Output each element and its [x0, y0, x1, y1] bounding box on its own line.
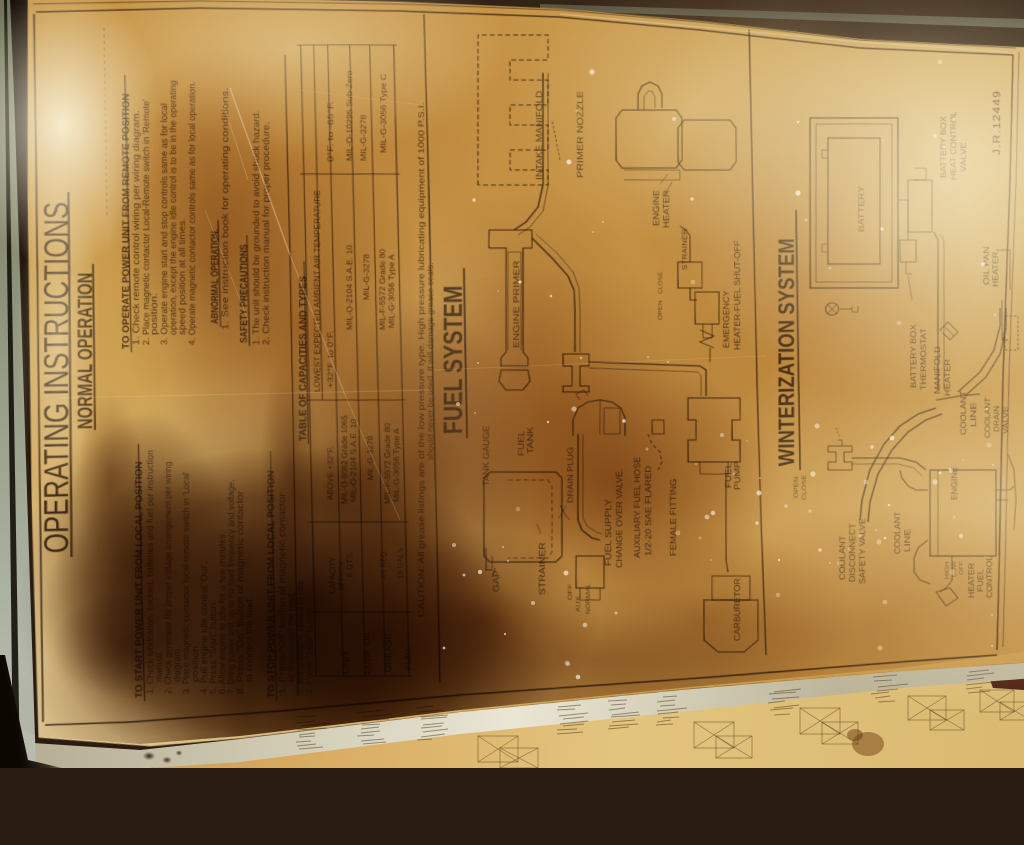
svg-text:LOWEST EXPECTED AMBIENT AIR TE: LOWEST EXPECTED AMBIENT AIR TEMPERATURE	[312, 190, 322, 392]
svg-text:AUXILIARY FUEL HOSE: AUXILIARY FUEL HOSE	[632, 457, 642, 559]
svg-text:HEATER: HEATER	[661, 190, 671, 228]
svg-text:3. Press "Stop" button.: 3. Press "Stop" button.	[304, 605, 314, 694]
svg-text:2. Check instruction manual fo: 2. Check instruction manual for proper p…	[261, 122, 271, 345]
svg-text:ENGINE PRIMER: ENGINE PRIMER	[511, 260, 521, 348]
svg-text:HIGH: HIGH	[944, 561, 950, 579]
svg-text:BATTERY BOX: BATTERY BOX	[909, 324, 918, 388]
svg-text:MIL-G-3056 Type A: MIL-G-3056 Type A	[392, 428, 401, 503]
svg-text:1. Check remote control wiring: 1. Check remote control wiring per wirin…	[131, 110, 141, 345]
svg-text:MIL-O-2104 S.A.E. 10: MIL-O-2104 S.A.E. 10	[345, 244, 354, 330]
svg-text:THERMOSTAT: THERMOSTAT	[919, 328, 928, 391]
svg-text:GREASE: GREASE	[383, 633, 393, 672]
svg-text:STRAINER: STRAINER	[537, 542, 547, 596]
svg-text:EMERGENCY: EMERGENCY	[721, 291, 730, 349]
svg-text:1. The unit should be grounded: 1. The unit should be grounded to avoid …	[251, 111, 261, 346]
svg-text:COOLANT: COOLANT	[838, 535, 847, 580]
svg-text:VALVE: VALVE	[1001, 406, 1010, 435]
svg-text:MANIFOLD: MANIFOLD	[933, 346, 942, 394]
svg-text:18 GALS.: 18 GALS.	[396, 546, 405, 579]
svg-text:DRAIN: DRAIN	[992, 406, 1001, 433]
svg-text:J.R.12449: J.R.12449	[992, 90, 1003, 155]
svg-text:MIL-G-3278: MIL-G-3278	[366, 435, 375, 480]
svg-text:OPEN: OPEN	[793, 476, 800, 498]
svg-text:TANK GAUGE: TANK GAUGE	[481, 426, 491, 487]
svg-text:CONTROL: CONTROL	[985, 556, 994, 599]
svg-text:MIL-G-3278: MIL-G-3278	[362, 253, 371, 300]
svg-text:BATTERY: BATTERY	[857, 186, 866, 232]
svg-text:PRIMER NOZZLE: PRIMER NOZZLE	[575, 91, 585, 178]
svg-text:OFF: OFF	[567, 584, 574, 601]
svg-text:UNIT: UNIT	[341, 650, 351, 674]
svg-text:1/2-20 SAE FLARED: 1/2-20 SAE FLARED	[643, 465, 653, 556]
svg-text:CARBURETOR: CARBURETOR	[732, 578, 741, 642]
svg-text:FUEL: FUEL	[403, 646, 413, 671]
svg-text:COOLANT: COOLANT	[893, 511, 902, 554]
svg-text:NORMAL: NORMAL	[585, 583, 592, 615]
svg-text:FUEL SUPPLY: FUEL SUPPLY	[603, 499, 613, 566]
svg-text:AUX.: AUX.	[575, 594, 582, 613]
svg-text:6 QTS.: 6 QTS.	[345, 551, 354, 577]
svg-text:HEATER: HEATER	[991, 251, 1000, 287]
svg-text:CAPACITY: CAPACITY	[328, 556, 337, 594]
svg-text:DISCONNECT: DISCONNECT	[848, 523, 857, 582]
svg-text:ENGINE: ENGINE	[950, 466, 959, 500]
svg-text:MIL-F-5572 Grade 80: MIL-F-5572 Grade 80	[383, 422, 392, 504]
svg-text:WINTERIZATION SYSTEM: WINTERIZATION SYSTEM	[774, 238, 799, 466]
svg-text:MIL-F-5572 Grade 80: MIL-F-5572 Grade 80	[378, 248, 387, 330]
svg-text:MIL-O-6082 Grade 1065: MIL-O-6082 Grade 1065	[340, 415, 349, 505]
svg-text:+32°F. to 0°F.: +32°F. to 0°F.	[326, 331, 335, 388]
svg-text:LINE: LINE	[903, 529, 912, 552]
svg-text:FUEL SYSTEM: FUEL SYSTEM	[438, 285, 468, 434]
svg-text:PUMP: PUMP	[732, 461, 741, 490]
svg-text:ABOVE +32°F.: ABOVE +32°F.	[326, 446, 335, 500]
svg-text:CHANGE OVER VALVE.: CHANGE OVER VALVE.	[614, 468, 624, 568]
svg-text:HEATER-FUEL SHUT-OFF: HEATER-FUEL SHUT-OFF	[733, 240, 742, 350]
svg-text:OFF: OFF	[958, 561, 964, 575]
svg-text:to connect the load.: to connect the load.	[244, 596, 254, 682]
svg-text:MIL-G-3278: MIL-G-3278	[359, 114, 368, 161]
svg-text:AS REQ.: AS REQ.	[379, 549, 388, 579]
svg-text:COOLANT: COOLANT	[959, 390, 968, 435]
svg-text:ENGINE: ENGINE	[651, 190, 661, 226]
svg-text:position.: position.	[149, 293, 159, 335]
svg-text:LINE: LINE	[969, 402, 978, 427]
svg-text:DRAIN PLUG: DRAIN PLUG	[565, 447, 575, 504]
svg-text:GAP: GAP	[491, 570, 501, 592]
svg-text:FUEL: FUEL	[976, 569, 985, 592]
svg-text:CLOSE: CLOSE	[801, 474, 808, 500]
svg-text:HEAT CONTROL: HEAT CONTROL	[949, 111, 958, 180]
svg-text:MIL-G-3056 Type A: MIL-G-3056 Type A	[387, 254, 396, 328]
svg-text:should never be used. It will: should never be used. It will damage gre…	[425, 263, 435, 461]
svg-text:0°F. to -65°F.: 0°F. to -65°F.	[326, 101, 335, 162]
svg-text:OIL PAN: OIL PAN	[982, 246, 991, 285]
svg-text:OPEN: OPEN	[658, 300, 664, 320]
svg-text:VALVE: VALVE	[959, 142, 968, 172]
svg-text:HEATER: HEATER	[967, 562, 976, 598]
svg-text:FUEL: FUEL	[723, 463, 732, 488]
svg-text:speed position at all times.: speed position at all times.	[177, 218, 187, 335]
svg-text:FEMALE FITTING: FEMALE FITTING	[668, 478, 678, 556]
svg-text:TANK: TANK	[525, 427, 535, 455]
svg-text:4. Operate magnetic contactor: 4. Operate magnetic contactor controls s…	[187, 81, 197, 345]
svg-text:COOLANT: COOLANT	[983, 397, 992, 438]
svg-text:MIL-G-3056 Type C: MIL-G-3056 Type C	[379, 73, 388, 153]
svg-text:MIL-O-10295 Sub-Zero: MIL-O-10295 Sub-Zero	[345, 70, 354, 161]
svg-text:MIL-O-2104 S.A.E. 10: MIL-O-2104 S.A.E. 10	[349, 418, 358, 502]
svg-text:BATTERY BOX: BATTERY BOX	[939, 116, 948, 178]
svg-text:SAFETY VALVE: SAFETY VALVE	[858, 518, 867, 584]
svg-text:CLOSE: CLOSE	[658, 271, 664, 294]
svg-text:1. See instruction book for op: 1. See instruction book for operating co…	[220, 88, 230, 331]
svg-text:LUBE OIL: LUBE OIL	[362, 629, 372, 674]
